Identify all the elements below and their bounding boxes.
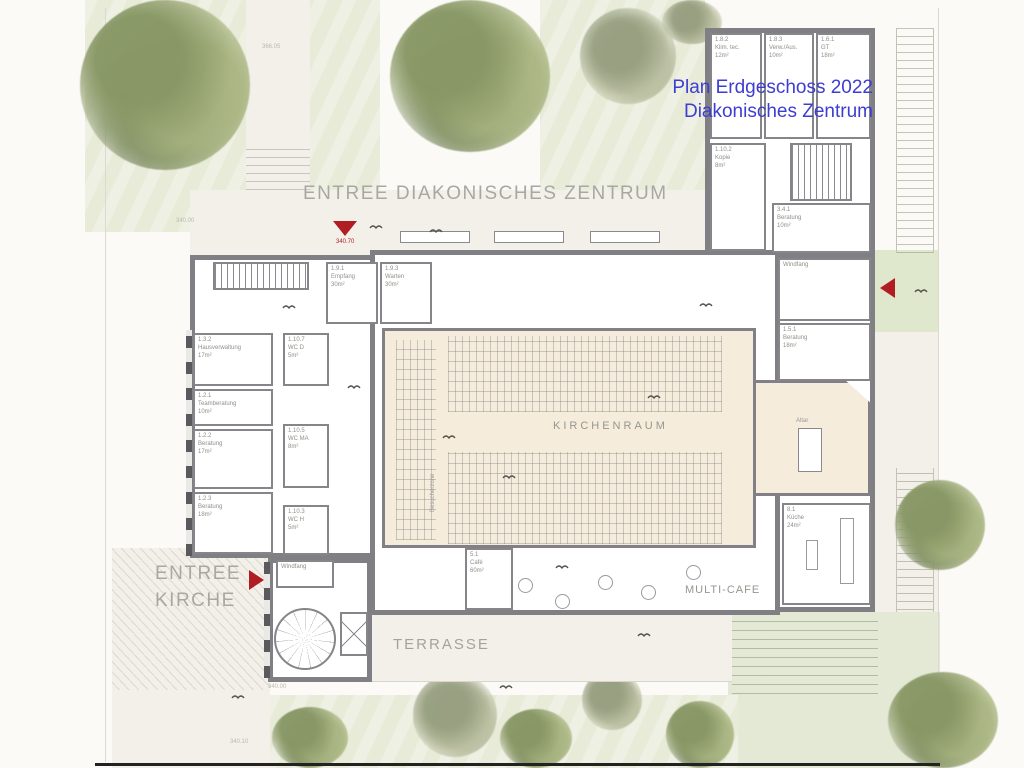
page-edge-line: [95, 763, 940, 766]
bird-marks: [0, 0, 1024, 768]
floor-plan: KIRCHENRAUM Besucherzone Altar 1.8.2 Kli…: [0, 0, 1024, 768]
